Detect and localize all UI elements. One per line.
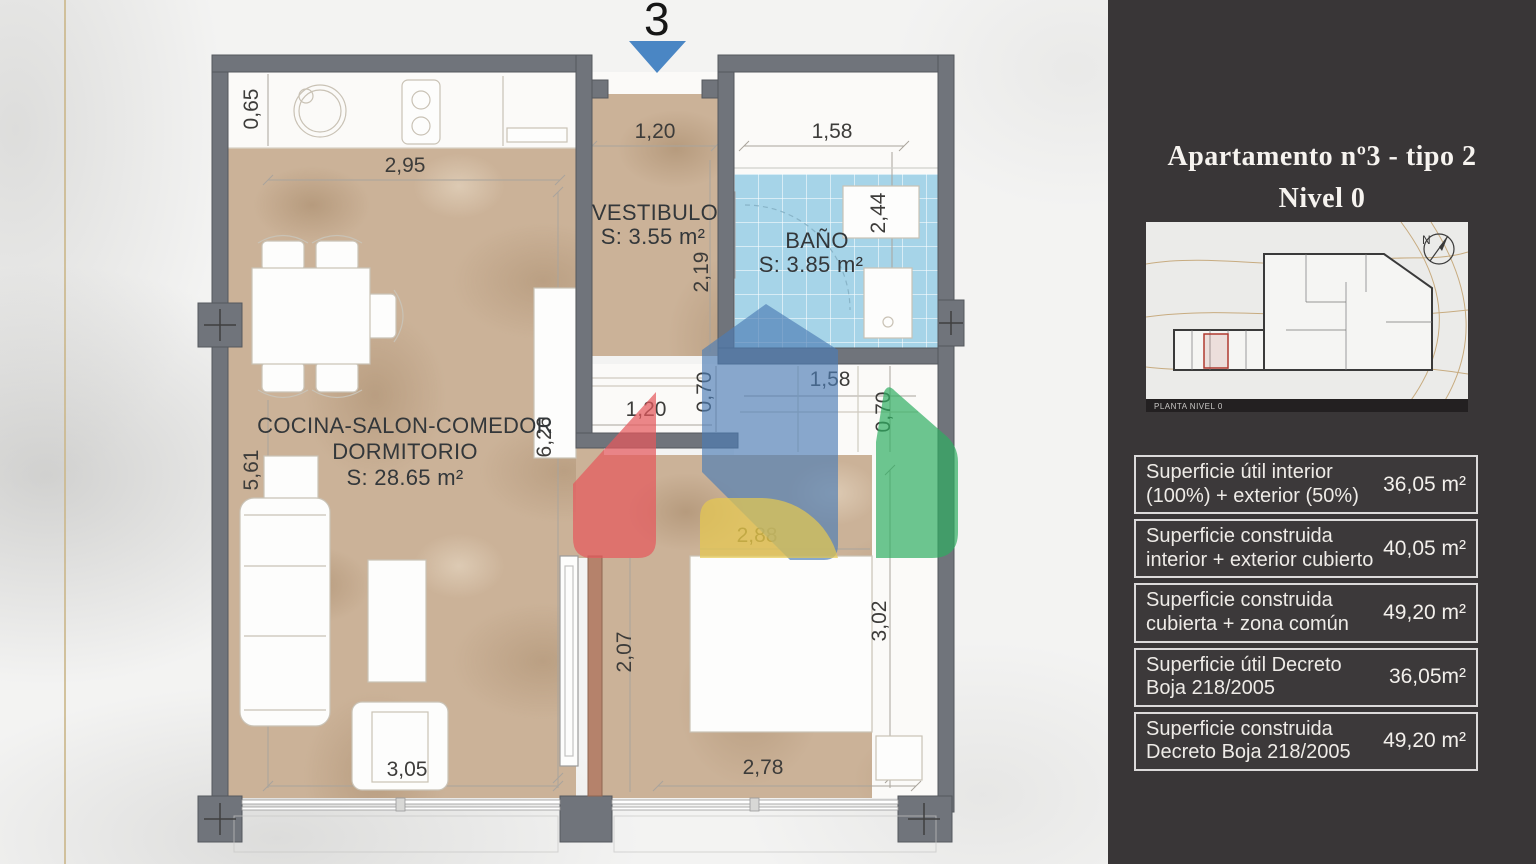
surface-label: Superficie construida cubierta + zona co… [1146,589,1376,636]
living-area: S: 28.65 m² [346,465,463,491]
dim-bedroom-width: 2,78 [743,756,784,780]
dim-bath-depth: 2,44 [867,193,891,234]
table-row: Superficie construida cubierta + zona co… [1134,583,1478,642]
unit-number: 3 [644,0,670,46]
table-row: Superficie útil Decreto Boja 218/2005 36… [1134,648,1478,707]
table-row: Superficie útil interior (100%) + exteri… [1134,455,1478,514]
sliding-door-leaf [560,556,578,766]
coffee-table [368,560,426,682]
compass-label: N [1422,233,1431,247]
dim-kitchen-width: 2,95 [385,154,426,178]
info-sidebar: Apartamento nº3 - tipo 2 Nivel 0 [1108,0,1536,864]
living-name-line1: COCINA-SALON-COMEDOR [257,413,553,439]
dim-bath-width: 1,58 [812,120,853,144]
surface-value: 40,05 m² [1379,537,1466,561]
dim-kitchen-depth: 0,65 [240,89,264,130]
surface-label: Superficie construida Decreto Boja 218/2… [1146,718,1376,765]
surface-value: 49,20 m² [1379,601,1466,625]
surface-value: 36,05m² [1385,665,1466,689]
dim-entry-width: 1,20 [635,120,676,144]
table-row: Superficie construida Decreto Boja 218/2… [1134,712,1478,771]
floor-plan-page: 3 0,65 2,95 1,20 1,58 2,44 2,19 6,26 5,6… [0,0,1536,864]
surface-value: 36,05 m² [1379,473,1466,497]
dim-entry-closet-depth: 0,70 [693,372,717,413]
dim-living-width: 3,05 [387,758,428,782]
dim-bath-closet-depth: 0,70 [872,392,896,433]
thumbnail-caption: PLANTA NIVEL 0 [1154,402,1223,411]
apartment-title-line1: Apartamento nº3 - tipo 2 [1118,136,1526,178]
dining-table-set [252,236,403,398]
surface-label: Superficie construida interior + exterio… [1146,525,1376,572]
site-plan-drawing: N PLANTA NIVEL 0 [1146,222,1468,412]
bedside-table [876,736,922,780]
bath-area: S: 3.85 m² [759,252,863,278]
apartment-title: Apartamento nº3 - tipo 2 Nivel 0 [1118,136,1526,220]
highlighted-unit [1204,334,1228,368]
vestibule-name: VESTIBULO [592,200,718,226]
bed [690,556,872,732]
bath-name: BAÑO [785,228,849,254]
vestibule-area: S: 3.55 m² [601,224,705,250]
dim-living-side-left: 5,61 [240,450,264,491]
dim-vestibule-depth: 2,19 [690,252,714,293]
dim-bath-closet-width: 1,58 [810,368,851,392]
divider-wall [588,556,602,796]
site-plan-thumbnail: N PLANTA NIVEL 0 [1146,222,1468,412]
table-row: Superficie construida interior + exterio… [1134,519,1478,578]
apartment-title-line2: Nivel 0 [1118,178,1526,220]
dim-bed-width: 2,88 [737,524,778,548]
dim-bedroom-depth: 3,02 [868,601,892,642]
living-name-line2: DORMITORIO [332,439,478,465]
sofa [240,498,330,726]
surface-value: 49,20 m² [1379,729,1466,753]
surface-label: Superficie útil interior (100%) + exteri… [1146,461,1376,508]
kitchen-counter [228,76,576,148]
surface-table: Superficie útil interior (100%) + exteri… [1134,455,1478,776]
surface-label: Superficie útil Decreto Boja 218/2005 [1146,654,1376,701]
dim-entry-closet-width: 1,20 [626,398,667,422]
dim-bedroom-door-span: 2,07 [613,632,637,673]
